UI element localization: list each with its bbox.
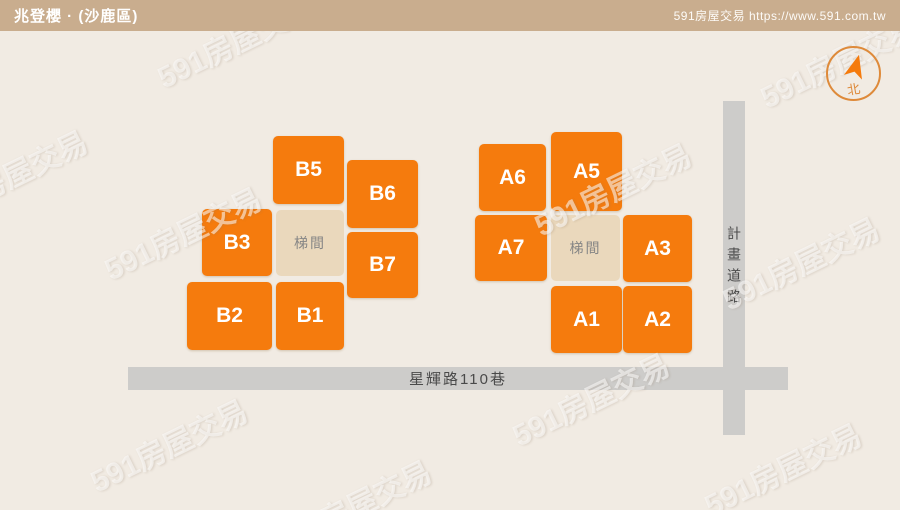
block-label: A3 (644, 237, 671, 261)
unit-block-b5[interactable]: B5 (273, 136, 344, 204)
block-label: 梯間 (570, 238, 602, 258)
road-label: 星輝路110巷 (409, 368, 507, 389)
unit-block-a6[interactable]: A6 (479, 144, 546, 211)
watermark-text: 591房屋交易 (696, 411, 868, 510)
unit-block-a3[interactable]: A3 (623, 215, 692, 282)
road-label: 計畫道路 (724, 226, 744, 310)
block-label: A7 (498, 236, 525, 260)
unit-block-b7[interactable]: B7 (347, 232, 418, 298)
block-label: A6 (499, 166, 526, 190)
stair-block-a: 梯間 (551, 215, 620, 281)
unit-block-b2[interactable]: B2 (187, 282, 272, 350)
block-label: A5 (573, 160, 600, 184)
watermark-text: 591房屋交易 (0, 118, 94, 232)
site-plan: 兆登櫻 · (沙鹿區) 591房屋交易 https://www.591.com.… (0, 0, 900, 510)
block-label: A2 (644, 308, 671, 332)
block-label: 梯間 (294, 233, 326, 253)
brand-url-text: 591房屋交易 https://www.591.com.tw (674, 7, 886, 24)
unit-block-a2[interactable]: A2 (623, 286, 692, 353)
unit-block-b1[interactable]: B1 (276, 282, 344, 350)
block-label: B6 (369, 182, 396, 206)
top-title-bar: 兆登櫻 · (沙鹿區) 591房屋交易 https://www.591.com.… (0, 0, 900, 31)
road-planned-road: 計畫道路 (723, 101, 745, 435)
watermark-text: 591房屋交易 (266, 448, 438, 510)
block-label: A1 (573, 308, 600, 332)
page-title: 兆登櫻 · (沙鹿區) (14, 5, 138, 26)
block-label: B1 (297, 304, 324, 328)
watermark-text: 591房屋交易 (82, 387, 254, 501)
road-xinghui-lane-110: 星輝路110巷 (128, 367, 788, 390)
unit-block-a5[interactable]: A5 (551, 132, 622, 211)
block-label: B2 (216, 304, 243, 328)
unit-block-b3[interactable]: B3 (202, 209, 272, 276)
block-label: B3 (224, 231, 251, 255)
unit-block-a7[interactable]: A7 (475, 215, 547, 281)
unit-block-a1[interactable]: A1 (551, 286, 622, 353)
block-label: B5 (295, 158, 322, 182)
stair-block-b: 梯間 (276, 210, 344, 276)
compass-north-label: 北 (827, 75, 881, 103)
block-label: B7 (369, 253, 396, 277)
unit-block-b6[interactable]: B6 (347, 160, 418, 228)
compass: 北 (826, 46, 881, 101)
watermark-text: 591房屋交易 (504, 341, 676, 455)
